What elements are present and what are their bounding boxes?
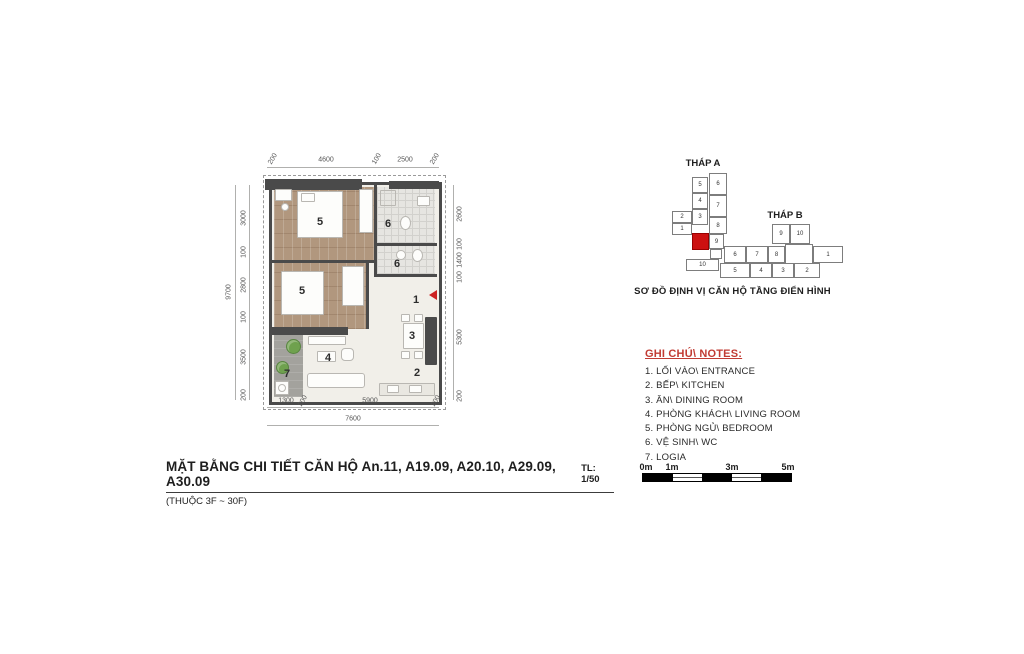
dim-label: 100 (371, 152, 383, 166)
tower-unit: 6 (709, 173, 727, 195)
tower-unit: 10 (790, 224, 810, 244)
drawing-scale: TL: 1/50 (581, 463, 614, 485)
scale-bar: 0m 1m 3m 5m (642, 462, 792, 482)
scale-segment (673, 474, 703, 481)
page-subtitle: (THUỘC 3F ~ 30F) (166, 496, 614, 507)
tower-unit: 9 (772, 224, 790, 244)
dim-label: 200 (267, 152, 279, 166)
tower-unit: 6 (724, 246, 746, 263)
dining-chair (414, 314, 423, 322)
dining-chair (401, 351, 410, 359)
room-label-kitchen: 2 (414, 367, 420, 379)
tower-a-label: THÁP A (686, 158, 721, 169)
sink-wc-1 (417, 196, 430, 206)
room-label-wc-1: 6 (385, 218, 391, 230)
tower-unit: 5 (720, 263, 750, 278)
tower-unit (785, 244, 813, 265)
dim-label: 100 (457, 271, 464, 283)
dim-label-total: 9700 (226, 284, 233, 300)
scale-segment (702, 474, 732, 481)
room-label-wc-2: 6 (394, 258, 400, 270)
tower-b-label: THÁP B (767, 210, 802, 221)
wall-bedroom2-right (366, 262, 369, 329)
dim-label: 100 (241, 246, 248, 258)
floor-plan: 5 5 6 6 1 3 2 4 7 200 4600 100 2500 200 … (160, 140, 640, 462)
dim-label: 1400 (457, 252, 464, 268)
dim-label: 200 (429, 152, 441, 166)
room-label-logia: 7 (284, 368, 290, 380)
washing-machine-drum (278, 384, 286, 392)
wall-bath-bottom (374, 274, 437, 277)
toilet-wc-2 (412, 249, 423, 262)
scale-label-3m: 3m (725, 462, 738, 472)
note-wc: 6. VỆ SINH\ WC (645, 436, 865, 450)
tower-unit: 1 (672, 223, 692, 235)
dim-label: 2600 (457, 206, 464, 222)
tower-unit: 5 (692, 177, 708, 193)
note-living: 4. PHÒNG KHÁCH\ LIVING ROOM (645, 408, 865, 422)
dim-label: 200 (457, 390, 464, 402)
note-bedroom: 5. PHÒNG NGỦ\ BEDROOM (645, 422, 865, 436)
scale-segment (761, 474, 791, 481)
tower-unit: 7 (709, 195, 727, 217)
wall-bath-divider (377, 243, 437, 246)
dimension-line-bottom (267, 407, 439, 408)
tower-unit: 7 (746, 246, 768, 263)
scale-bar-labels: 0m 1m 3m 5m (642, 462, 792, 473)
dim-label: 200 (241, 389, 248, 401)
room-label-entrance: 1 (413, 294, 419, 306)
dining-chair (401, 314, 410, 322)
bed-1-pillow (301, 193, 315, 202)
title-block: MẶT BẰNG CHI TIẾT CĂN HỘ An.11, A19.09, … (166, 459, 614, 507)
note-kitchen: 2. BẾP\ KITCHEN (645, 379, 865, 393)
room-wc-2-floor (377, 246, 435, 274)
dimension-line-left-total (235, 185, 236, 400)
tower-unit-highlighted (692, 233, 709, 250)
dim-label: 4600 (318, 157, 334, 164)
unit-locator-diagram: THÁP A 54367892110 THÁP B 91067815432 SƠ… (620, 158, 845, 308)
scale-bar-segments (642, 473, 792, 482)
scale-label-5m: 5m (781, 462, 794, 472)
room-label-bedroom-2: 5 (299, 285, 305, 297)
dim-label: 3500 (241, 349, 248, 365)
dim-label: 1300 (278, 398, 294, 405)
scale-segment (643, 474, 673, 481)
vanity-stool (281, 203, 289, 211)
plant (286, 339, 301, 354)
wall-bedrooms-divider (272, 260, 377, 263)
tower-unit: 4 (750, 263, 772, 278)
tower-unit: 8 (768, 246, 785, 263)
dining-chair (414, 351, 423, 359)
dimension-line-bottom-total (267, 425, 439, 426)
dim-label: 100 (457, 238, 464, 250)
toilet-wc-1 (400, 216, 411, 230)
vanity-desk (275, 189, 292, 201)
kitchen-stove (387, 385, 399, 393)
tv-console (308, 336, 346, 345)
wall-top-right (389, 181, 439, 189)
dim-label: 3000 (241, 210, 248, 226)
tower-unit: 2 (794, 263, 820, 278)
tower-unit: 10 (686, 259, 719, 271)
legend-notes: GHI CHÚ\ NOTES: 1. LỐI VÀO\ ENTRANCE 2. … (645, 348, 865, 465)
dimension-line-left (249, 185, 250, 400)
entrance-arrow (429, 290, 437, 300)
scale-label-0m: 0m (639, 462, 652, 472)
note-entrance: 1. LỐI VÀO\ ENTRANCE (645, 365, 865, 379)
dim-label: 2500 (397, 157, 413, 164)
pouf (341, 348, 354, 361)
tower-unit: 1 (813, 246, 843, 263)
dimension-line-top (267, 167, 439, 168)
room-label-dining: 3 (409, 330, 415, 342)
wardrobe-bedroom-2 (342, 266, 364, 306)
wall-bath-vertical (374, 185, 377, 277)
shower-wc-1 (380, 190, 396, 206)
dim-label-total: 7600 (345, 416, 361, 423)
kitchen-sink (409, 385, 422, 393)
closet-bedroom-1 (359, 189, 373, 233)
dim-label: 2800 (241, 277, 248, 293)
floorplan-page: { "title": { "main": "MẶT BẰNG CHI TIẾT … (0, 0, 1024, 654)
cabinet-wall-unit (425, 317, 437, 365)
room-label-living: 4 (325, 352, 331, 364)
room-label-bedroom-1: 5 (317, 216, 323, 228)
tower-unit: 3 (692, 209, 708, 225)
scale-label-1m: 1m (665, 462, 678, 472)
dimension-line-right (453, 185, 454, 400)
notes-heading: GHI CHÚ\ NOTES: (645, 348, 865, 360)
tower-unit: 4 (692, 193, 708, 209)
dim-label: 100 (241, 311, 248, 323)
tower-unit: 3 (772, 263, 794, 278)
page-title: MẶT BẰNG CHI TIẾT CĂN HỘ An.11, A19.09, … (166, 459, 567, 489)
sofa (307, 373, 365, 388)
scale-segment (732, 474, 762, 481)
site-map-caption: SƠ ĐỒ ĐỊNH VỊ CĂN HỘ TẦNG ĐIỂN HÌNH (620, 286, 845, 297)
note-dining: 3. ĂN\ DINING ROOM (645, 394, 865, 408)
tower-unit: 2 (672, 211, 692, 223)
dim-label: 5900 (362, 398, 378, 405)
tower-b-diagram: 91067815432 (720, 224, 844, 280)
dim-label: 5300 (457, 329, 464, 345)
wall-bedroom2-bottom (272, 327, 348, 335)
